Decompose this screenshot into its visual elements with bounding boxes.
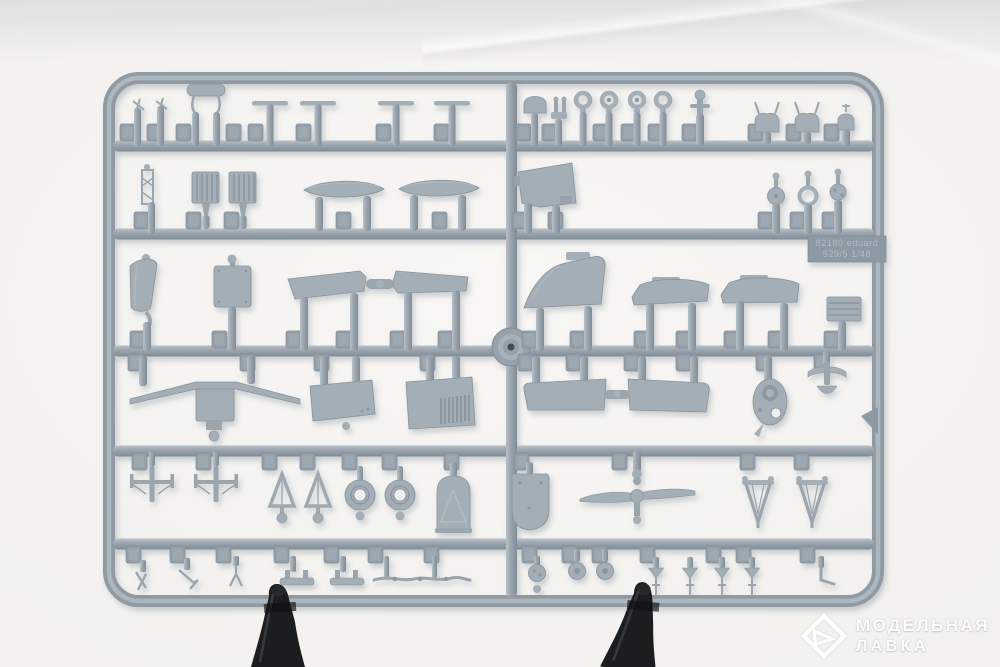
watermark-line2: ЛАВКА xyxy=(856,637,990,657)
part-bulkhead-shield xyxy=(512,462,549,530)
sprue: 82180 eduard 529/5 1/48 xyxy=(109,78,886,601)
part-support-frame xyxy=(187,84,225,146)
sprue-photo: 82180 eduard 529/5 1/48 xyxy=(0,0,1000,667)
part-small-wheel xyxy=(569,549,614,580)
part-step-bracket xyxy=(818,556,834,584)
part-number-tabs xyxy=(120,124,839,141)
part-a-frame-strut xyxy=(270,474,330,523)
watermark: МОДЕЛЬНАЯ ЛАВКА xyxy=(801,613,990,659)
part-louvered-cowl-panel xyxy=(406,356,475,429)
part-tail-fin xyxy=(524,252,605,351)
holding-clip-right xyxy=(600,578,670,667)
part-corner-wedge xyxy=(861,407,878,434)
watermark-line1: МОДЕЛЬНАЯ xyxy=(856,615,990,636)
part-bomb-rack xyxy=(280,556,364,585)
parts-row-5 xyxy=(130,451,828,533)
part-small-dome xyxy=(838,104,854,146)
part-wing-spar-and-box xyxy=(130,356,300,441)
part-propeller xyxy=(580,451,695,524)
part-number-tabs xyxy=(130,331,839,348)
part-main-wheel xyxy=(345,466,415,521)
part-number-tabs xyxy=(134,212,837,229)
part-tail-wheel-door xyxy=(435,462,472,533)
parts-row-6 xyxy=(126,546,834,596)
part-v-strut xyxy=(742,476,828,528)
part-number-tabs xyxy=(128,354,829,371)
photo-stage: 82180 eduard 529/5 1/48 xyxy=(0,0,1000,667)
sprue-marking-line1: 82180 eduard xyxy=(816,238,879,248)
parts-row-1 xyxy=(120,84,854,146)
part-control-rods xyxy=(374,556,470,581)
marking-plate: 82180 eduard 529/5 1/48 xyxy=(808,236,886,262)
sprue-marking-line2: 529/5 1/48 xyxy=(823,249,872,259)
model-shop-logo-icon xyxy=(801,613,847,659)
watermark-text: МОДЕЛЬНАЯ ЛАВКА xyxy=(856,615,990,656)
parts-row-2 xyxy=(134,163,846,234)
